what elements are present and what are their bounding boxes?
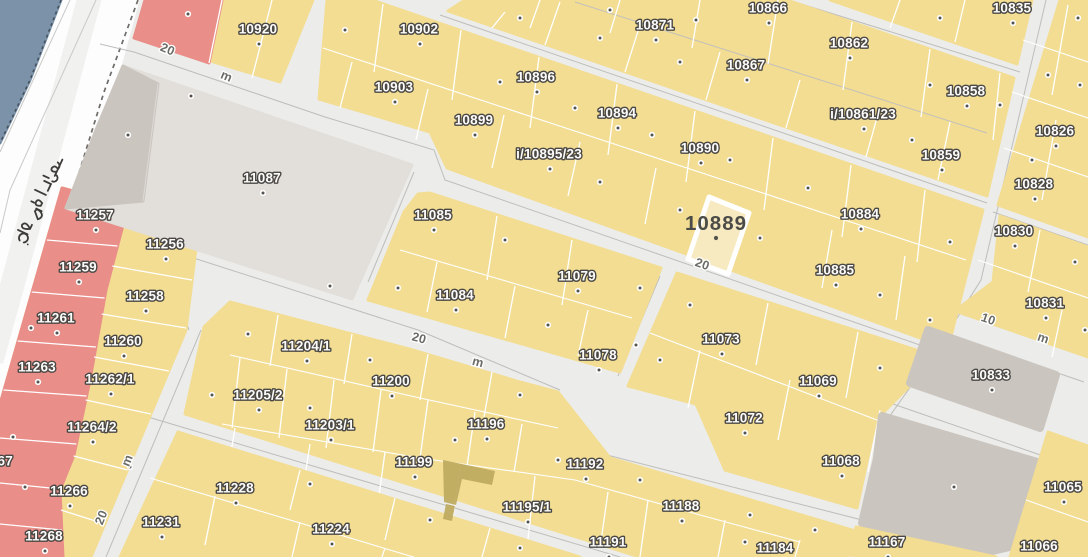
svg-text:10858: 10858	[947, 84, 986, 99]
svg-text:11205/2: 11205/2	[233, 388, 282, 403]
svg-text:10835: 10835	[993, 1, 1032, 16]
svg-text:11266: 11266	[50, 484, 88, 499]
svg-text:11079: 11079	[558, 269, 596, 284]
svg-text:10831: 10831	[1026, 296, 1065, 311]
svg-text:11257: 11257	[76, 208, 114, 223]
svg-text:10871: 10871	[636, 18, 675, 33]
svg-text:i/10895/23: i/10895/23	[516, 147, 582, 162]
svg-text:10867: 10867	[727, 58, 766, 73]
svg-text:11231: 11231	[142, 515, 180, 530]
svg-text:10884: 10884	[841, 207, 880, 222]
svg-text:11184: 11184	[756, 541, 793, 556]
svg-text:10862: 10862	[830, 36, 869, 51]
svg-text:10828: 10828	[1015, 177, 1054, 192]
svg-text:10889: 10889	[685, 212, 747, 235]
svg-text:11263: 11263	[18, 360, 56, 375]
svg-text:10902: 10902	[400, 22, 439, 37]
svg-text:11268: 11268	[25, 529, 63, 544]
svg-text:11078: 11078	[579, 348, 617, 363]
svg-text:11084: 11084	[436, 288, 474, 303]
svg-text:11069: 11069	[799, 374, 837, 389]
svg-text:10920: 10920	[239, 22, 278, 37]
svg-text:11085: 11085	[414, 208, 452, 223]
svg-text:10833: 10833	[972, 368, 1011, 383]
svg-text:10890: 10890	[681, 141, 720, 156]
svg-text:10826: 10826	[1036, 124, 1075, 139]
svg-text:11261: 11261	[37, 311, 75, 326]
svg-text:11262/1: 11262/1	[85, 372, 135, 387]
svg-text:11068: 11068	[822, 454, 860, 469]
svg-text:10899: 10899	[455, 113, 494, 128]
svg-text:11256: 11256	[146, 237, 184, 252]
svg-text:11260: 11260	[104, 334, 142, 349]
svg-text:11199: 11199	[395, 455, 432, 470]
svg-text:11192: 11192	[566, 457, 603, 472]
svg-text:i/10861/23: i/10861/23	[830, 107, 896, 122]
svg-text:11224: 11224	[312, 522, 350, 537]
svg-text:11073: 11073	[702, 332, 740, 347]
svg-text:10894: 10894	[598, 106, 637, 121]
svg-text:11087: 11087	[243, 171, 281, 186]
svg-text:10903: 10903	[375, 80, 414, 95]
svg-text:10830: 10830	[995, 224, 1034, 239]
svg-text:11066: 11066	[1020, 539, 1058, 554]
svg-text:11195/1: 11195/1	[503, 500, 552, 515]
svg-text:11196: 11196	[467, 417, 504, 432]
svg-text:11065: 11065	[1044, 480, 1082, 495]
svg-text:10866: 10866	[749, 1, 788, 16]
svg-text:11258: 11258	[126, 289, 164, 304]
svg-text:10885: 10885	[816, 263, 855, 278]
svg-text:11267: 11267	[0, 454, 13, 469]
svg-text:10896: 10896	[517, 70, 556, 85]
svg-text:11072: 11072	[725, 411, 763, 426]
svg-text:11191: 11191	[589, 535, 626, 550]
svg-text:11264/2: 11264/2	[67, 420, 116, 435]
svg-text:11167: 11167	[868, 535, 905, 550]
svg-text:11204/1: 11204/1	[281, 339, 331, 354]
svg-text:11259: 11259	[59, 260, 97, 275]
svg-text:11200: 11200	[372, 374, 410, 389]
svg-text:11203/1: 11203/1	[305, 418, 355, 433]
svg-text:11228: 11228	[216, 481, 254, 496]
svg-text:10859: 10859	[922, 148, 961, 163]
svg-text:11188: 11188	[662, 499, 699, 514]
